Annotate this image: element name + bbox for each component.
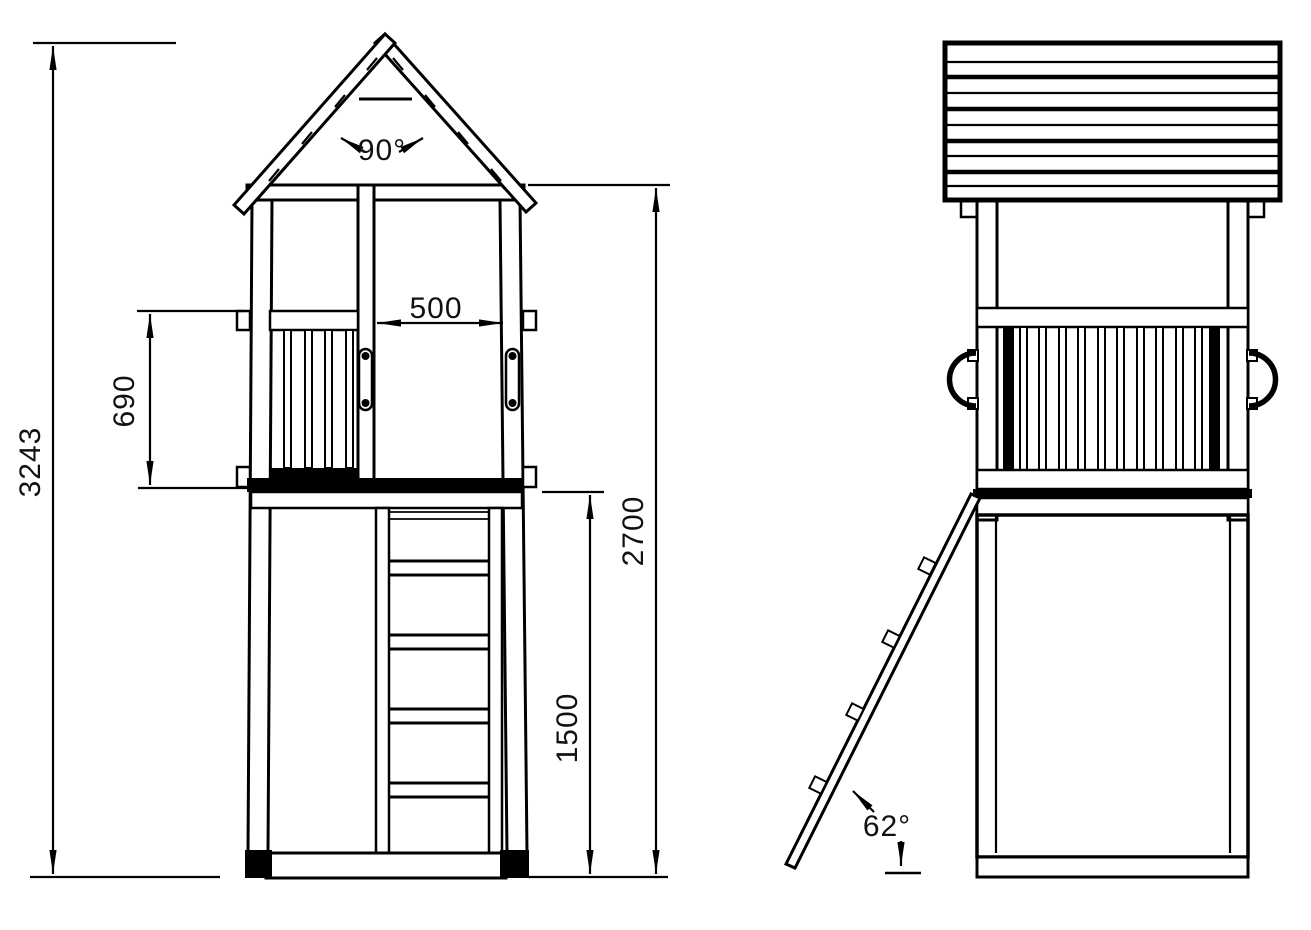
platform-deck	[247, 478, 524, 492]
side-roof	[945, 43, 1280, 200]
angle-arrow-ladder	[853, 791, 874, 812]
front-left-post	[248, 200, 272, 853]
side-rail-top	[977, 308, 1248, 327]
dim-railing-height: 690	[108, 311, 262, 488]
railing-baluster	[284, 330, 291, 468]
railing-baluster	[305, 330, 312, 468]
roof-bracket-right	[1248, 200, 1264, 217]
platform-rim	[251, 492, 522, 508]
grab-ring-left	[950, 350, 978, 409]
side-view	[786, 43, 1280, 877]
dim-opening-width: 500	[377, 292, 503, 325]
front-railing	[270, 311, 358, 488]
side-base-plank	[977, 857, 1248, 877]
front-top-beam	[247, 185, 524, 200]
side-railing	[977, 308, 1248, 489]
side-balusters	[1020, 327, 1202, 470]
dim-total-height: 3243	[14, 43, 176, 874]
drawing-canvas: 3243 690 500 90° 2700	[0, 0, 1311, 930]
dim-opening-width-label: 500	[409, 292, 462, 325]
grab-handle-left	[359, 349, 372, 410]
rail-tab-upper-right	[523, 311, 536, 330]
side-corner-post	[1209, 327, 1220, 470]
foot-left	[245, 850, 272, 878]
foot-right	[500, 850, 529, 878]
base-plank	[266, 853, 506, 878]
ladder-rungs	[389, 561, 489, 797]
railing-top-rail	[270, 311, 358, 330]
roof-bracket-left	[961, 200, 977, 217]
side-platform-rim	[977, 498, 1248, 515]
side-corner-post	[1003, 327, 1014, 470]
front-center-divider	[358, 185, 374, 490]
dim-roof-angle: 90°	[341, 134, 423, 167]
front-right-post	[500, 200, 527, 853]
side-lower-box	[977, 515, 1248, 877]
side-platform-deck	[973, 489, 1252, 498]
technical-drawing: 3243 690 500 90° 2700	[0, 0, 1311, 930]
dim-roof-angle-label: 90°	[358, 134, 406, 167]
dim-platform-height-label: 1500	[551, 693, 584, 764]
dim-ladder-angle-label: 62°	[863, 810, 911, 843]
ladder-rail-right	[489, 508, 502, 853]
side-rail-bottom	[977, 470, 1248, 489]
dim-total-height-label: 3243	[14, 427, 47, 498]
dim-ladder-angle: 62°	[853, 791, 921, 873]
ladder-rail-left	[376, 508, 389, 853]
dim-railing-height-label: 690	[108, 374, 141, 427]
rail-tab-lower-right	[523, 467, 536, 487]
grab-ring-right	[1247, 350, 1276, 409]
front-access-ladder	[376, 508, 502, 853]
railing-baluster	[325, 330, 332, 468]
rail-tab-upper-left	[237, 311, 250, 330]
dim-post-height: 2700	[528, 185, 670, 874]
grab-handle-right	[506, 349, 519, 410]
dimensions: 3243 690 500 90° 2700	[14, 43, 921, 877]
railing-baluster	[346, 330, 353, 468]
dim-post-height-label: 2700	[617, 496, 650, 567]
dim-platform-height: 1500	[542, 492, 604, 874]
